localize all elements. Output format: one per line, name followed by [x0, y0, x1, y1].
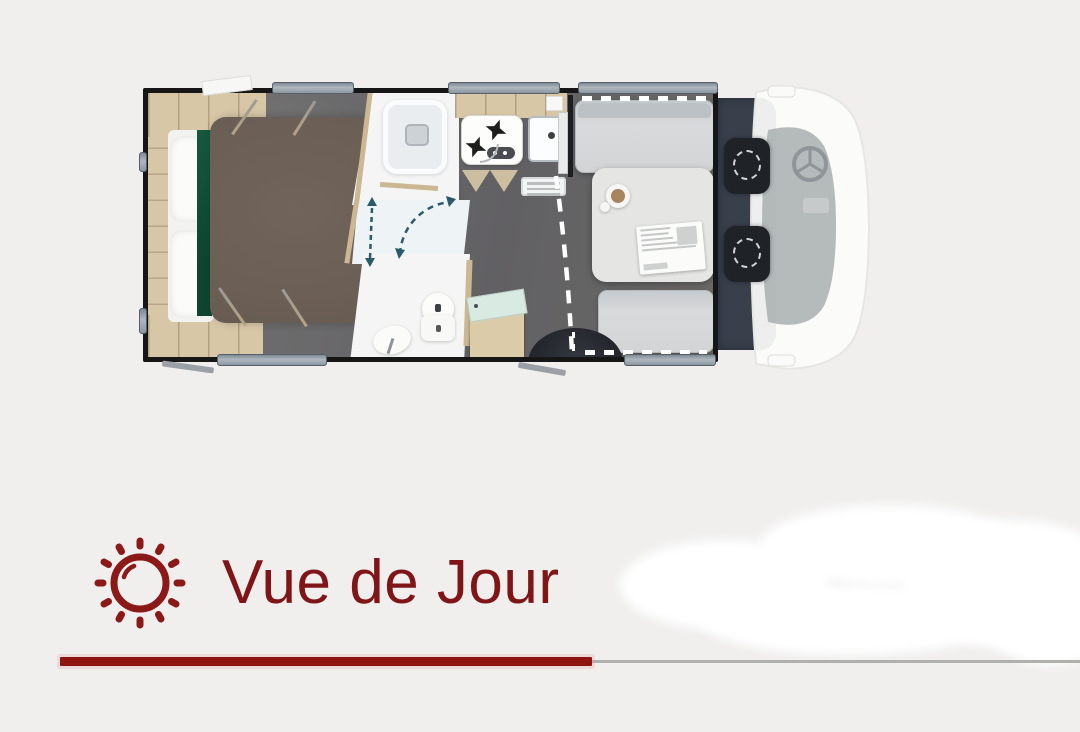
window-bar — [272, 82, 354, 94]
view-title: Vue de Jour — [222, 552, 560, 614]
burner-icon — [462, 133, 490, 161]
burner-icon — [482, 116, 510, 144]
sink-faucet — [546, 96, 563, 111]
driver-swivel-seat — [724, 138, 770, 194]
window-bar — [448, 82, 560, 94]
page: Vue de Jour — [0, 0, 1080, 732]
whiteout-blob — [600, 495, 1080, 670]
wall-vent — [139, 152, 147, 172]
swivel-arc — [733, 238, 761, 268]
window-bar — [217, 354, 327, 366]
habitat-interior — [143, 88, 718, 362]
sun-icon — [90, 533, 190, 633]
exterior-flap — [518, 362, 566, 376]
arrowhead — [395, 248, 405, 259]
exterior-flap — [162, 360, 214, 373]
accordion-door-line — [370, 208, 372, 258]
window-bar — [578, 82, 718, 94]
door-swing-arc — [400, 202, 451, 254]
dashboard-console — [803, 198, 829, 213]
walkway-path — [556, 176, 572, 354]
arrowhead — [446, 196, 456, 207]
arrowhead — [367, 197, 377, 206]
entry-door-bar — [624, 354, 716, 366]
swivel-arc — [733, 150, 761, 180]
hob-divider-curve — [480, 144, 498, 162]
accent-divider — [60, 657, 592, 666]
gray-divider — [592, 660, 1080, 663]
side-mirror — [768, 86, 795, 97]
plan-overlay-graphics — [143, 88, 718, 362]
motorhome-floorplan — [140, 82, 880, 382]
side-mirror — [768, 355, 795, 366]
passenger-swivel-seat — [724, 226, 770, 282]
arrowhead — [365, 258, 375, 267]
wall-vent — [139, 308, 147, 334]
